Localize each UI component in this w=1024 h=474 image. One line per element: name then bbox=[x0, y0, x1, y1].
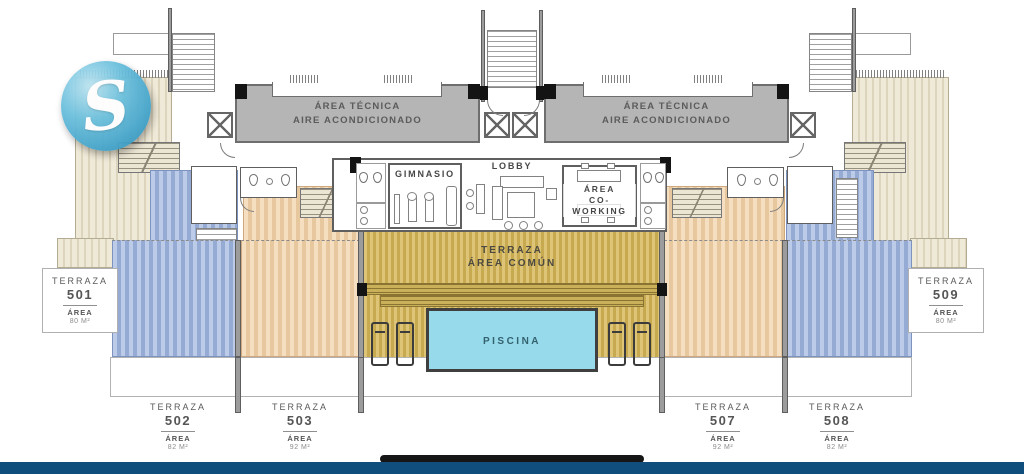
divider-post bbox=[659, 357, 665, 413]
coworking-line1: ÁREA bbox=[563, 184, 636, 195]
chair-icon bbox=[607, 217, 615, 223]
vent-icon bbox=[602, 75, 632, 83]
sofa-icon bbox=[492, 186, 503, 220]
terrace-502 bbox=[112, 240, 238, 357]
pool-label: PISCINA bbox=[426, 336, 598, 347]
bathroom-right bbox=[640, 163, 666, 203]
stairs-peach-right-icon bbox=[672, 188, 722, 218]
terrace-503 bbox=[241, 240, 360, 357]
unit-area-label: ÁREA bbox=[918, 308, 974, 317]
stairs-top-right-icon bbox=[809, 33, 852, 92]
technical-left-line2: AIRE ACONDICIONADO bbox=[245, 114, 470, 128]
column bbox=[357, 283, 367, 296]
footer-bar bbox=[0, 462, 1024, 474]
unit-502-label: TERRAZA 502 ÁREA 82 M² bbox=[138, 402, 218, 451]
gym-label: GIMNASIO bbox=[390, 169, 460, 180]
terrace-507 bbox=[664, 240, 783, 357]
door-arc-icon bbox=[789, 143, 804, 158]
roof-box-right bbox=[854, 33, 911, 55]
divider-wall bbox=[235, 240, 241, 357]
unit-number: 501 bbox=[52, 287, 108, 302]
weight-rack-icon bbox=[394, 194, 400, 224]
unit-area-value: 80 M² bbox=[918, 318, 974, 325]
exercise-bike-wheel-icon bbox=[424, 192, 434, 201]
stair-room-right bbox=[787, 166, 833, 224]
pouf-icon bbox=[534, 221, 543, 230]
sun-lounger-icon bbox=[633, 322, 651, 366]
wall-top-right bbox=[852, 8, 856, 92]
divider bbox=[929, 305, 963, 306]
unit-501-box: TERRAZA 501 ÁREA 80 M² bbox=[42, 268, 118, 333]
divider-post bbox=[358, 357, 364, 413]
unit-area-label: ÁREA bbox=[260, 434, 340, 443]
chair-icon bbox=[581, 163, 589, 169]
column bbox=[468, 84, 480, 99]
chair-icon bbox=[607, 163, 615, 169]
vent-icon bbox=[290, 75, 320, 83]
stairs-central-icon bbox=[487, 30, 537, 88]
unit-terraza: TERRAZA bbox=[797, 402, 877, 412]
technical-notch-left bbox=[272, 82, 442, 97]
sink-icon bbox=[266, 178, 273, 185]
unit-number: 507 bbox=[683, 413, 763, 428]
terrace-cream-left-lower bbox=[57, 238, 114, 268]
reception-desk-icon bbox=[476, 184, 485, 214]
sofa-icon bbox=[500, 176, 544, 188]
unit-507-label: TERRAZA 507 ÁREA 92 M² bbox=[683, 402, 763, 451]
column bbox=[235, 84, 247, 99]
common-terrace-line1: TERRAZA bbox=[363, 244, 661, 257]
unit-terraza: TERRAZA bbox=[52, 276, 108, 286]
unit-area-value: 82 M² bbox=[138, 444, 218, 451]
sun-lounger-icon bbox=[608, 322, 626, 366]
common-terrace-label: TERRAZA ÁREA COMÚN bbox=[363, 244, 661, 270]
divider bbox=[63, 305, 97, 306]
pouf-icon bbox=[504, 221, 513, 230]
divider bbox=[283, 431, 317, 432]
hatch-edge-right bbox=[856, 70, 944, 78]
common-terrace-line2: ÁREA COMÚN bbox=[363, 257, 661, 270]
technical-area-right-label: ÁREA TÉCNICA AIRE ACONDICIONADO bbox=[554, 100, 779, 127]
unit-terraza: TERRAZA bbox=[260, 402, 340, 412]
brand-logo: S bbox=[61, 61, 151, 151]
stairs-mid-left-icon bbox=[118, 142, 180, 173]
unit-number: 509 bbox=[918, 287, 974, 302]
unit-508-label: TERRAZA 508 ÁREA 82 M² bbox=[797, 402, 877, 451]
door-arc-icon bbox=[220, 143, 235, 158]
unit-area-label: ÁREA bbox=[683, 434, 763, 443]
column bbox=[544, 84, 556, 99]
unit-area-label: ÁREA bbox=[797, 434, 877, 443]
technical-area-left-label: ÁREA TÉCNICA AIRE ACONDICIONADO bbox=[245, 100, 470, 127]
chair-icon bbox=[466, 202, 474, 210]
armchair-icon bbox=[546, 188, 557, 200]
sink-icon bbox=[754, 178, 761, 185]
unit-509-label: TERRAZA 509 ÁREA 80 M² bbox=[918, 276, 974, 325]
unit-area-label: ÁREA bbox=[52, 308, 108, 317]
unit-area-value: 92 M² bbox=[260, 444, 340, 451]
column bbox=[657, 283, 667, 296]
unit-number: 508 bbox=[797, 413, 877, 428]
pouf-icon bbox=[519, 221, 528, 230]
stairs-mid-right-icon bbox=[844, 142, 906, 173]
terrace-cream-right-lower bbox=[910, 238, 967, 268]
stairs-top-left-icon bbox=[172, 33, 215, 92]
unit-509-box: TERRAZA 509 ÁREA 80 M² bbox=[908, 268, 984, 333]
column bbox=[777, 84, 789, 99]
unit-number: 503 bbox=[260, 413, 340, 428]
unit-terraza: TERRAZA bbox=[138, 402, 218, 412]
technical-left-line1: ÁREA TÉCNICA bbox=[245, 100, 470, 114]
terrace-steps bbox=[364, 283, 660, 295]
unit-area-label: ÁREA bbox=[138, 434, 218, 443]
divider-wall bbox=[782, 240, 788, 357]
divider-post bbox=[782, 357, 788, 413]
technical-right-line1: ÁREA TÉCNICA bbox=[554, 100, 779, 114]
stair-room-left bbox=[191, 166, 237, 224]
roof-box-left bbox=[113, 33, 170, 55]
technical-notch-right bbox=[583, 82, 753, 97]
elevator-icon bbox=[207, 112, 233, 138]
lobby-label: LOBBY bbox=[470, 161, 554, 172]
terrace-508 bbox=[787, 240, 912, 357]
wall-top-left bbox=[168, 8, 172, 92]
technical-right-line2: AIRE ACONDICIONADO bbox=[554, 114, 779, 128]
brand-logo-letter: S bbox=[78, 65, 134, 148]
unit-terraza: TERRAZA bbox=[918, 276, 974, 286]
chair-icon bbox=[581, 217, 589, 223]
divider bbox=[820, 431, 854, 432]
floor-plan-canvas: ÁREA TÉCNICA AIRE ACONDICIONADO ÁREA TÉC… bbox=[0, 0, 1024, 474]
unit-area-value: 80 M² bbox=[52, 318, 108, 325]
divider-post bbox=[235, 357, 241, 413]
unit-503-label: TERRAZA 503 ÁREA 92 M² bbox=[260, 402, 340, 451]
coworking-line2: CO-WORKING bbox=[563, 195, 636, 217]
exercise-bike-wheel-icon bbox=[407, 192, 417, 201]
unit-number: 502 bbox=[138, 413, 218, 428]
treadmill-icon bbox=[446, 186, 457, 226]
divider bbox=[706, 431, 740, 432]
sink-icon bbox=[360, 217, 368, 225]
desk-icon bbox=[577, 170, 621, 182]
unit-terraza: TERRAZA bbox=[683, 402, 763, 412]
stairs-in-blue-right-icon bbox=[836, 178, 858, 238]
divider bbox=[161, 431, 195, 432]
vent-icon bbox=[384, 75, 414, 83]
vent-icon bbox=[694, 75, 724, 83]
unit-501-label: TERRAZA 501 ÁREA 80 M² bbox=[52, 276, 108, 325]
sun-lounger-icon bbox=[371, 322, 389, 366]
sink-icon bbox=[360, 206, 368, 214]
coffee-table-icon bbox=[507, 192, 535, 218]
sun-lounger-icon bbox=[396, 322, 414, 366]
terrace-steps bbox=[380, 295, 644, 307]
coworking-label: ÁREA CO-WORKING bbox=[563, 184, 636, 217]
sink-icon bbox=[644, 206, 652, 214]
unit-area-value: 92 M² bbox=[683, 444, 763, 451]
bathroom-left bbox=[356, 163, 386, 203]
unit-area-value: 82 M² bbox=[797, 444, 877, 451]
elevator-icon bbox=[484, 112, 510, 138]
elevator-icon bbox=[790, 112, 816, 138]
sink-icon bbox=[644, 217, 652, 225]
chair-icon bbox=[466, 189, 474, 197]
